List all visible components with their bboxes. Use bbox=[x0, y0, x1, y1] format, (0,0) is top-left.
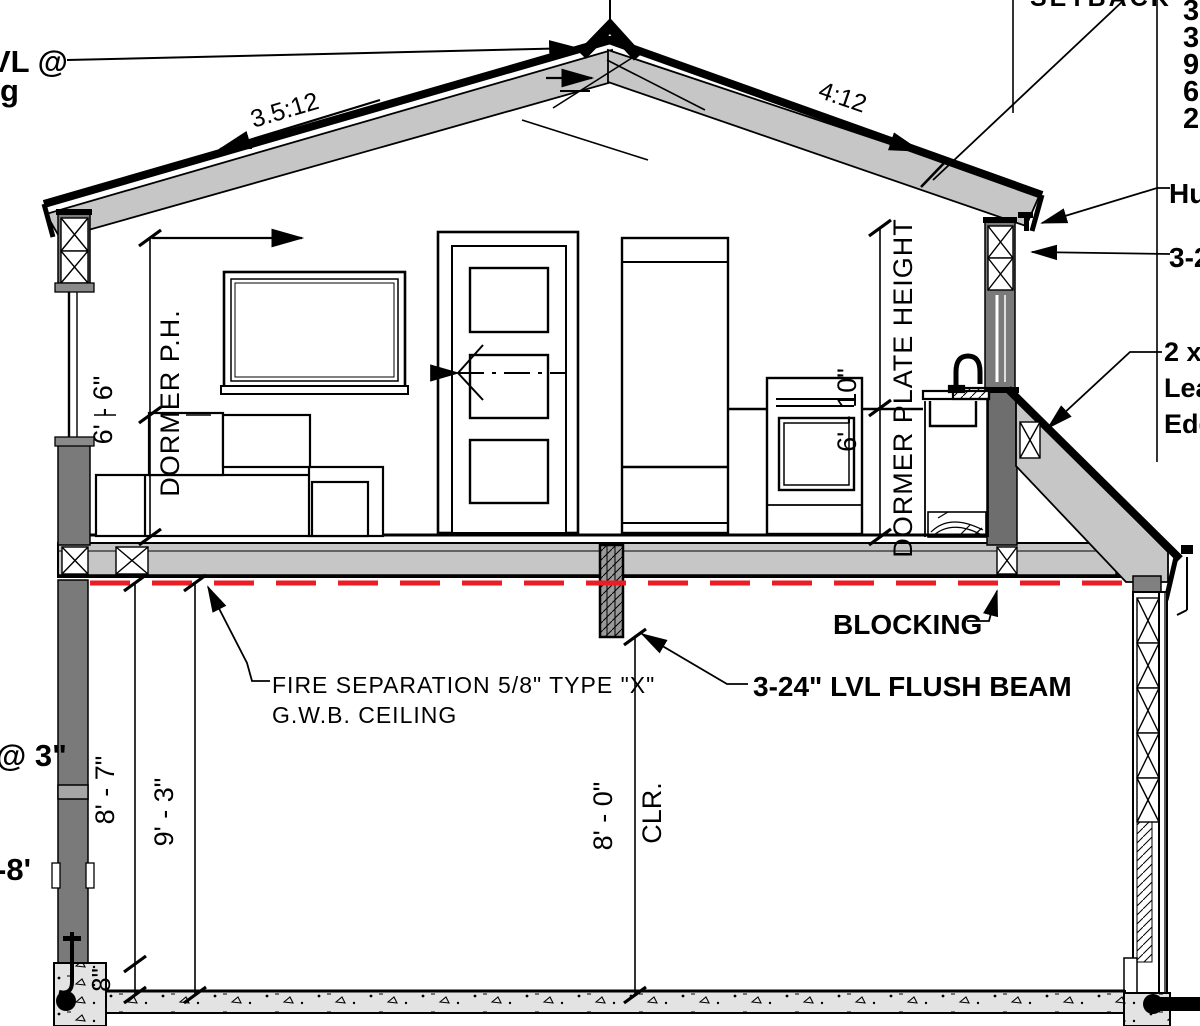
annotation-fire-separation-2: G.W.B. CEILING bbox=[272, 702, 457, 728]
fragment-at3: @ 3" bbox=[0, 738, 67, 773]
fragment-top-left-2: g bbox=[0, 73, 19, 108]
fire-separation-leader bbox=[208, 587, 270, 681]
dim-dormer-plate-right-label: DORMER PLATE HEIGHT bbox=[888, 218, 918, 558]
sofa bbox=[96, 413, 383, 536]
label-plates-fragment: 3-2 bbox=[1169, 242, 1200, 273]
label-ledger-fragment-3: Edg bbox=[1164, 409, 1200, 439]
section-drawing: VL @ g SETBACK 3 3 9 6 2 Hu 3-2 2 x Lea … bbox=[0, 0, 1200, 1026]
dim-dormer-ph-left-value: 6' - 6" bbox=[88, 376, 118, 445]
hurricane-leader bbox=[1042, 188, 1170, 223]
second-floor-assembly bbox=[58, 535, 1160, 637]
beam-leader bbox=[642, 634, 748, 684]
pitch-label-right: 4:12 bbox=[815, 76, 870, 118]
dim-stem-wall: 8" bbox=[86, 968, 116, 992]
dim-clear-suffix: CLR. bbox=[637, 782, 667, 844]
annotation-flush-beam: 3-24" LVL FLUSH BEAM bbox=[753, 671, 1072, 702]
left-wall bbox=[52, 209, 94, 963]
dim-first-floor-b: 9' - 3" bbox=[149, 778, 179, 847]
wood-blocking-grain bbox=[928, 512, 986, 537]
roof bbox=[44, 0, 1042, 238]
label-hurricane-fragment: Hu bbox=[1169, 178, 1200, 209]
plates-leader bbox=[1032, 252, 1170, 254]
dim-first-floor-a: 8' - 7" bbox=[90, 756, 120, 825]
annotation-blocking: BLOCKING bbox=[833, 609, 982, 640]
foundation-slab bbox=[54, 932, 1200, 1026]
right-wall-lower bbox=[1124, 576, 1167, 998]
ridge-leader bbox=[67, 48, 577, 60]
section-drawing-canvas: VL @ g SETBACK 3 3 9 6 2 Hu 3-2 2 x Lea … bbox=[0, 0, 1200, 1026]
tall-cabinet bbox=[622, 238, 728, 533]
fragment-neg8: -8' bbox=[0, 852, 31, 887]
door bbox=[438, 232, 578, 533]
faucet-icon bbox=[949, 356, 980, 392]
wall-tv bbox=[221, 272, 408, 394]
ledger-leader bbox=[1048, 352, 1162, 428]
lvl-flush-beam bbox=[600, 545, 623, 637]
labels: VL @ g SETBACK 3 3 9 6 2 Hu 3-2 2 x Lea … bbox=[0, 0, 1200, 992]
fragment-setback: SETBACK bbox=[1030, 0, 1172, 12]
dim-clear-height: 8' - 0" bbox=[588, 782, 618, 851]
kitchen-sink bbox=[923, 356, 989, 537]
fragment-right-5: 2 bbox=[1183, 103, 1199, 135]
dim-dormer-plate-right-value: 6' - 10" bbox=[832, 368, 862, 452]
label-ledger-fragment-1: 2 x bbox=[1164, 337, 1200, 367]
label-ledger-fragment-2: Lea bbox=[1164, 373, 1200, 403]
setback-leader bbox=[933, 0, 1124, 180]
dim-dormer-ph-left-label: DORMER P.H. bbox=[155, 309, 185, 497]
annotation-fire-separation-1: FIRE SEPARATION 5/8" TYPE "X" bbox=[272, 672, 655, 698]
